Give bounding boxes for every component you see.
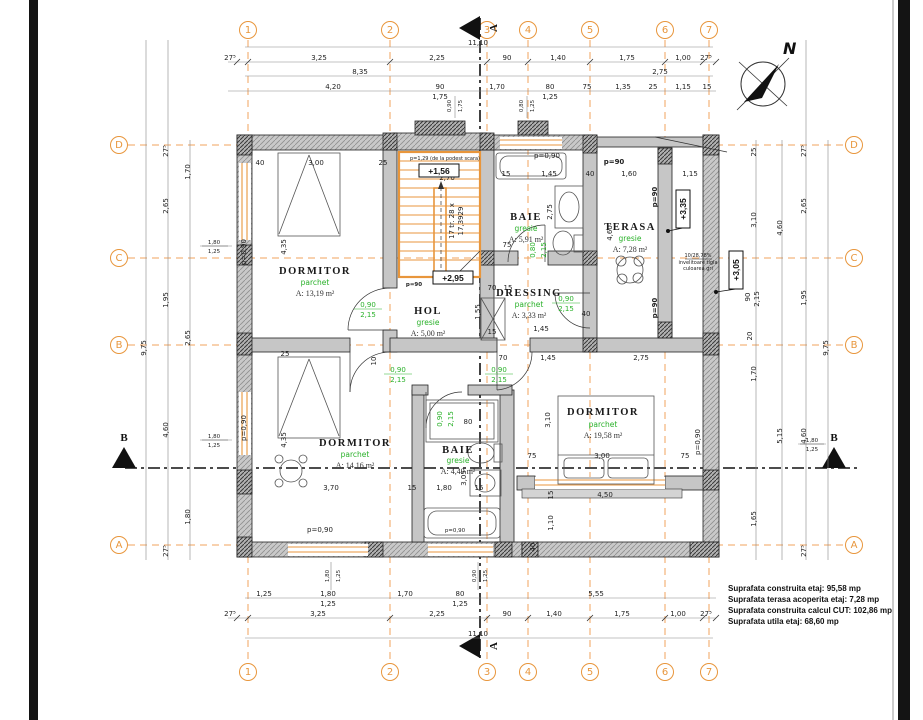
dim-label: 1,15 bbox=[682, 170, 698, 178]
dim-label: 25 bbox=[649, 83, 658, 91]
dim-label: 40 bbox=[582, 310, 591, 318]
parapet-label: p=0,90 bbox=[307, 526, 333, 534]
dim-label: 1,80 bbox=[806, 438, 819, 444]
north-arrow: N bbox=[737, 39, 797, 110]
grid-label: D bbox=[850, 140, 858, 151]
grid-label: 2 bbox=[387, 25, 393, 36]
dim-label: 1,65 bbox=[750, 511, 758, 527]
dim-label: 1,25 bbox=[320, 600, 336, 608]
dim-label: 1,45 bbox=[541, 170, 557, 178]
grid-label: 2 bbox=[387, 667, 393, 678]
dim-label: 15 bbox=[408, 484, 417, 492]
dim-label: 1,00 bbox=[675, 54, 691, 62]
dim-label: 1,70 bbox=[397, 590, 413, 598]
dim-label: 1,25 bbox=[530, 99, 536, 112]
area-summary: Suprafata construita etaj: 95,58 mp Supr… bbox=[728, 584, 892, 626]
room-finish: parchet bbox=[515, 300, 544, 309]
parapet-label: p=0,90 bbox=[240, 415, 248, 441]
grid-label: A bbox=[851, 540, 858, 551]
dim-label: 1,55 bbox=[474, 304, 482, 320]
dim-label: 0,80 bbox=[519, 99, 525, 112]
dim-label: 1,25 bbox=[256, 590, 272, 598]
dim-label: 1,75 bbox=[458, 99, 464, 112]
dim-label: 80 bbox=[464, 418, 473, 426]
dim-label: 80 bbox=[546, 83, 555, 91]
dim-label: 2,25 bbox=[429, 54, 445, 62]
room-area: A: 13,19 m² bbox=[296, 289, 335, 298]
dim-label: 1,40 bbox=[550, 54, 566, 62]
dim-label: 4,35 bbox=[280, 432, 288, 448]
dim-label: 27⁵ bbox=[800, 545, 808, 557]
dim-label: 1,45 bbox=[540, 354, 556, 362]
dim-label: 4,50 bbox=[597, 491, 613, 499]
dim-label: 27⁵ bbox=[700, 54, 712, 62]
section-marker-right bbox=[822, 447, 846, 468]
dim-label: 1,75 bbox=[614, 610, 630, 618]
grid-label: 4 bbox=[525, 667, 531, 678]
parapet-label: p=90 bbox=[604, 158, 625, 166]
dim-label: 90 bbox=[503, 610, 512, 618]
room-finish: parchet bbox=[589, 420, 618, 429]
summary-line: Suprafata terasa acoperita etaj: 7,28 mp bbox=[728, 595, 879, 604]
floor-plan-canvas: 1 2 3 4 5 6 7 1 2 3 4 5 6 7 D C B A D C … bbox=[0, 0, 923, 720]
dim-label: 3,00 bbox=[308, 159, 324, 167]
grid-label: B bbox=[116, 340, 123, 351]
room-finish: parchet bbox=[341, 450, 370, 459]
page-edge-right bbox=[898, 0, 910, 720]
dim-label: 1,70 bbox=[750, 366, 758, 382]
room-area: A: 7,28 m² bbox=[613, 245, 648, 254]
door-size: 0,90 bbox=[360, 301, 376, 309]
dim-label: 27⁵ bbox=[224, 610, 236, 618]
dim-label: 2,75 bbox=[546, 204, 554, 220]
roof-note: culoarea gri bbox=[683, 266, 713, 272]
dimension-labels-right: 25 3,10 4,60 90 2,15 20 1,70 27⁵ 2,65 1,… bbox=[744, 145, 830, 557]
grid-label: 5 bbox=[587, 25, 593, 36]
dim-label: 40 bbox=[586, 170, 595, 178]
section-marker-top bbox=[459, 16, 480, 40]
dim-label: 2,65 bbox=[800, 198, 808, 214]
level-label: +2,95 bbox=[442, 273, 464, 283]
dim-label: 4,60 bbox=[162, 422, 170, 438]
room-area: A: 14,16 m² bbox=[336, 461, 375, 470]
parapet-label: p=90 bbox=[651, 298, 659, 319]
dim-label: 1,75 bbox=[432, 93, 448, 101]
level-label: +1,56 bbox=[428, 166, 450, 176]
dim-label: 1,00 bbox=[670, 610, 686, 618]
dim-label: 1,80 bbox=[320, 590, 336, 598]
dim-label: 2,65 bbox=[184, 330, 192, 346]
dim-label: 1,35 bbox=[615, 83, 631, 91]
dimension-labels-top: 11,10 27⁵ 3,25 2,25 90 1,40 1,75 1,00 27… bbox=[224, 39, 712, 112]
grid-label: 7 bbox=[706, 25, 712, 36]
dim-label: 1,25 bbox=[806, 447, 819, 453]
stairs-note: p=1,29 (de la podest scara) bbox=[410, 156, 480, 162]
dim-label: 11,10 bbox=[468, 630, 488, 638]
room-finish: gresie bbox=[447, 456, 470, 465]
dim-label: 40 bbox=[529, 543, 537, 552]
dim-label: 27⁵ bbox=[224, 54, 236, 62]
dim-label: 5,55 bbox=[588, 590, 604, 598]
parapet-label: p=90 bbox=[406, 282, 422, 288]
parapet-label: p=0,90 bbox=[534, 152, 560, 160]
grid-label: A bbox=[116, 540, 123, 551]
parapet-label: p=90 bbox=[651, 187, 659, 208]
dim-label: 3,10 bbox=[544, 412, 552, 428]
room-name: BAIE bbox=[442, 445, 474, 456]
dim-label: 1,95 bbox=[800, 290, 808, 306]
grid-label: C bbox=[851, 253, 858, 264]
parapet-label: p=0,90 bbox=[694, 429, 702, 455]
dim-label: 0,90 bbox=[447, 99, 453, 112]
door-size: 2,15 bbox=[491, 376, 507, 384]
dim-label: 3,70 bbox=[323, 484, 339, 492]
door-size: 0,90 bbox=[558, 295, 574, 303]
dim-label: 4,20 bbox=[325, 83, 341, 91]
door-size: 0,90 bbox=[436, 411, 444, 427]
door-size: 0,80 bbox=[529, 242, 537, 258]
parapet-label: p=0,90 bbox=[445, 528, 466, 534]
room-area: A: 5,91 m² bbox=[509, 235, 544, 244]
dim-label: 75 bbox=[583, 83, 592, 91]
door-size: 0,90 bbox=[491, 366, 507, 374]
room-finish: parchet bbox=[301, 278, 330, 287]
dim-label: 1,25 bbox=[542, 93, 558, 101]
grid-label: 6 bbox=[662, 25, 668, 36]
dim-label: 1,40 bbox=[546, 610, 562, 618]
grid-label: C bbox=[116, 253, 123, 264]
grid-label: 7 bbox=[706, 667, 712, 678]
parapet-label: p=0,90 bbox=[240, 239, 248, 265]
chair bbox=[280, 460, 302, 482]
section-letter: B bbox=[830, 432, 838, 444]
wardrobe bbox=[278, 357, 340, 438]
roof-note: 10/28,78% bbox=[684, 253, 711, 259]
door-size: 2,15 bbox=[447, 411, 455, 427]
room-name: BAIE bbox=[510, 212, 542, 223]
level-label: +3,35 bbox=[678, 198, 688, 220]
dim-label: 1,80 bbox=[184, 509, 192, 525]
room-area: A: 3,33 m² bbox=[512, 311, 547, 320]
dim-label: 0,90 bbox=[472, 569, 478, 582]
dim-label: 15 bbox=[488, 328, 497, 336]
grid-label: 5 bbox=[587, 667, 593, 678]
dim-label: 2,25 bbox=[429, 610, 445, 618]
summary-line: Suprafata construita etaj: 95,58 mp bbox=[728, 584, 861, 593]
dim-label: 40 bbox=[256, 159, 265, 167]
dim-label: 15 bbox=[475, 484, 484, 492]
room-name: DORMITOR bbox=[319, 438, 391, 449]
dim-label: 1,25 bbox=[336, 569, 342, 582]
dim-label: 27⁵ bbox=[162, 545, 170, 557]
stairs-count: 17,3929 bbox=[457, 207, 465, 236]
dimension-labels-bottom: 1,25 1,80 1,25 1,70 80 1,25 5,55 27⁵ 3,2… bbox=[224, 569, 712, 638]
grid-label: 4 bbox=[525, 25, 531, 36]
dim-label: 2,75 bbox=[633, 354, 649, 362]
room-finish: gresie bbox=[619, 234, 642, 243]
dim-label: 15 bbox=[547, 491, 555, 500]
grid-label: 1 bbox=[245, 667, 251, 678]
dim-label: 80 bbox=[456, 590, 465, 598]
room-name: DORMITOR bbox=[279, 266, 351, 277]
door-size: 2,15 bbox=[558, 305, 574, 313]
dim-label: 2,65 bbox=[162, 198, 170, 214]
dim-label: 27⁵ bbox=[700, 610, 712, 618]
plant bbox=[617, 257, 643, 283]
dim-label: 3,10 bbox=[750, 212, 758, 228]
dim-label: 90 bbox=[436, 83, 445, 91]
dim-label: 2,75 bbox=[652, 68, 668, 76]
dim-label: 20 bbox=[746, 332, 754, 341]
grid-label: D bbox=[115, 140, 123, 151]
section-letter: A bbox=[488, 24, 500, 32]
dim-label: 11,10 bbox=[468, 39, 488, 47]
dim-label: 4,35 bbox=[280, 239, 288, 255]
grid-label: 3 bbox=[484, 667, 490, 678]
dim-label: 3,25 bbox=[310, 610, 326, 618]
dim-label: 5,15 bbox=[776, 428, 784, 444]
dim-label: 3,25 bbox=[311, 54, 327, 62]
section-marker-left bbox=[112, 447, 136, 468]
page-edge-left bbox=[29, 0, 38, 720]
dim-label: 1,25 bbox=[452, 600, 468, 608]
dim-label: 9,75 bbox=[140, 340, 148, 356]
dim-label: 1,80 bbox=[208, 240, 221, 246]
dim-label: 1,15 bbox=[675, 83, 691, 91]
room-finish: gresie bbox=[515, 224, 538, 233]
dim-label: 1,70 bbox=[489, 83, 505, 91]
dim-label: 70 bbox=[488, 284, 497, 292]
dim-label: 1,70 bbox=[184, 164, 192, 180]
grid-label: 6 bbox=[662, 667, 668, 678]
dim-label: 90 bbox=[503, 54, 512, 62]
dim-label: 3,00 bbox=[594, 452, 610, 460]
room-area: A: 4,49 m² bbox=[441, 467, 476, 476]
dim-label: 9,75 bbox=[822, 340, 830, 356]
dim-label: 1,45 bbox=[533, 325, 549, 333]
room-name: TERASA bbox=[604, 222, 656, 233]
dimension-labels-left: 9,75 27⁵ 1,70 2,65 1,80 1,25 1,95 2,65 4… bbox=[140, 145, 228, 557]
dim-label: 25 bbox=[750, 148, 758, 157]
dim-label: 1,10 bbox=[547, 515, 555, 531]
dim-label: 27⁵ bbox=[800, 145, 808, 157]
dim-label: 25 bbox=[281, 350, 290, 358]
dim-label: 1,25 bbox=[208, 249, 221, 255]
room-name: HOL bbox=[414, 306, 442, 317]
door-size: 2,15 bbox=[360, 311, 376, 319]
dim-label: 10 bbox=[370, 357, 378, 366]
door-size: 2,15 bbox=[540, 242, 548, 258]
grid-label: 1 bbox=[245, 25, 251, 36]
dim-label: 1,25 bbox=[208, 443, 221, 449]
dim-label: 15 bbox=[502, 170, 511, 178]
dim-label: 1,75 bbox=[619, 54, 635, 62]
dim-label: 90 bbox=[744, 293, 752, 302]
dim-label: 4,60 bbox=[776, 220, 784, 236]
dim-label: 25 bbox=[379, 159, 388, 167]
door-size: 2,15 bbox=[390, 376, 406, 384]
dim-label: 1,25 bbox=[483, 569, 489, 582]
room-area: A: 19,58 m² bbox=[584, 431, 623, 440]
stairs-count: 17 tr. 28 x bbox=[448, 203, 456, 239]
room-name: DRESSING bbox=[496, 288, 562, 299]
summary-line: Suprafata construita calcul CUT: 102,86 … bbox=[728, 606, 892, 615]
room-name: DORMITOR bbox=[567, 407, 639, 418]
section-letter: B bbox=[120, 432, 128, 444]
level-label: +3,05 bbox=[731, 259, 741, 281]
dim-label: 27⁵ bbox=[162, 145, 170, 157]
dim-label: 15 bbox=[703, 83, 712, 91]
dim-label: 70 bbox=[499, 354, 508, 362]
door-size: 0,90 bbox=[390, 366, 406, 374]
north-label: N bbox=[783, 39, 797, 58]
section-letter: A bbox=[488, 642, 500, 650]
dim-label: 75 bbox=[681, 452, 690, 460]
room-area: A: 5,00 m² bbox=[411, 329, 446, 338]
dim-label: 1,80 bbox=[325, 569, 331, 582]
dim-label: 1,80 bbox=[208, 434, 221, 440]
room-finish: gresie bbox=[417, 318, 440, 327]
dim-label: 8,35 bbox=[352, 68, 368, 76]
dim-label: 1,95 bbox=[162, 292, 170, 308]
grid-label: B bbox=[851, 340, 858, 351]
dim-label: 2,15 bbox=[753, 291, 761, 307]
dim-label: 1,80 bbox=[436, 484, 452, 492]
dim-label: 1,60 bbox=[621, 170, 637, 178]
dim-label: 75 bbox=[528, 452, 537, 460]
summary-line: Suprafata utila etaj: 68,60 mp bbox=[728, 617, 839, 626]
